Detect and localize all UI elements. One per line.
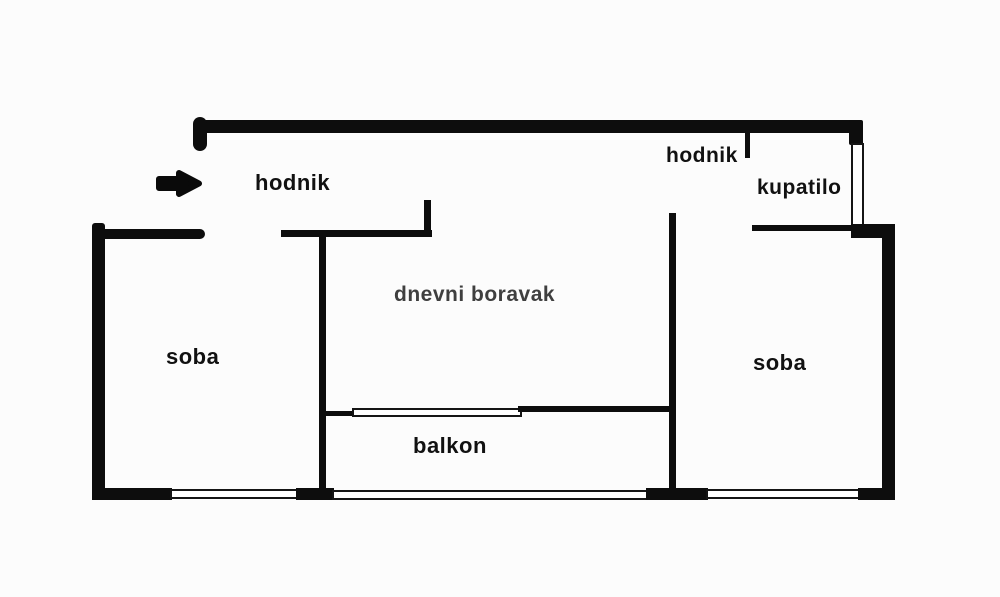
hallway-left-label: hodnik [255, 172, 330, 194]
wall-top [196, 120, 862, 133]
wall-room-left-top [92, 229, 205, 239]
room-left-label: soba [166, 346, 219, 368]
entrance-arrow-icon [155, 168, 203, 198]
wall-hallway-door-stub [424, 200, 431, 237]
floor-plan: hodnik hodnik kupatilo dnevni boravak so… [0, 0, 1000, 597]
balcony-window-bottom [332, 490, 648, 500]
wall-interior-right-vertical [669, 213, 676, 490]
living-room-label: dnevni boravak [394, 284, 555, 305]
wall-bathroom-bottom [752, 225, 853, 231]
wall-interior-left-vertical [319, 231, 326, 490]
wall-left [92, 223, 105, 500]
wall-top-right-corner [849, 120, 863, 145]
room-right-label: soba [753, 352, 806, 374]
wall-right [882, 224, 895, 500]
hallway-right-label: hodnik [666, 145, 738, 166]
wall-hallway-bottom [281, 230, 432, 237]
room-left-window [170, 489, 299, 499]
wall-bottom-3 [646, 488, 708, 500]
wall-bottom-1 [92, 488, 172, 500]
wall-bottom-4-corner [858, 488, 895, 500]
bathroom-label: kupatilo [757, 177, 842, 198]
bathroom-window [851, 143, 864, 226]
balcony-label: balkon [413, 435, 487, 457]
wall-top-left-cap [193, 117, 207, 151]
wall-bathroom-door-stub [745, 131, 750, 158]
wall-balcony-divider-right [518, 406, 675, 412]
wall-bottom-2 [296, 488, 334, 500]
room-right-window [706, 489, 861, 499]
balcony-window-sill [352, 408, 522, 417]
